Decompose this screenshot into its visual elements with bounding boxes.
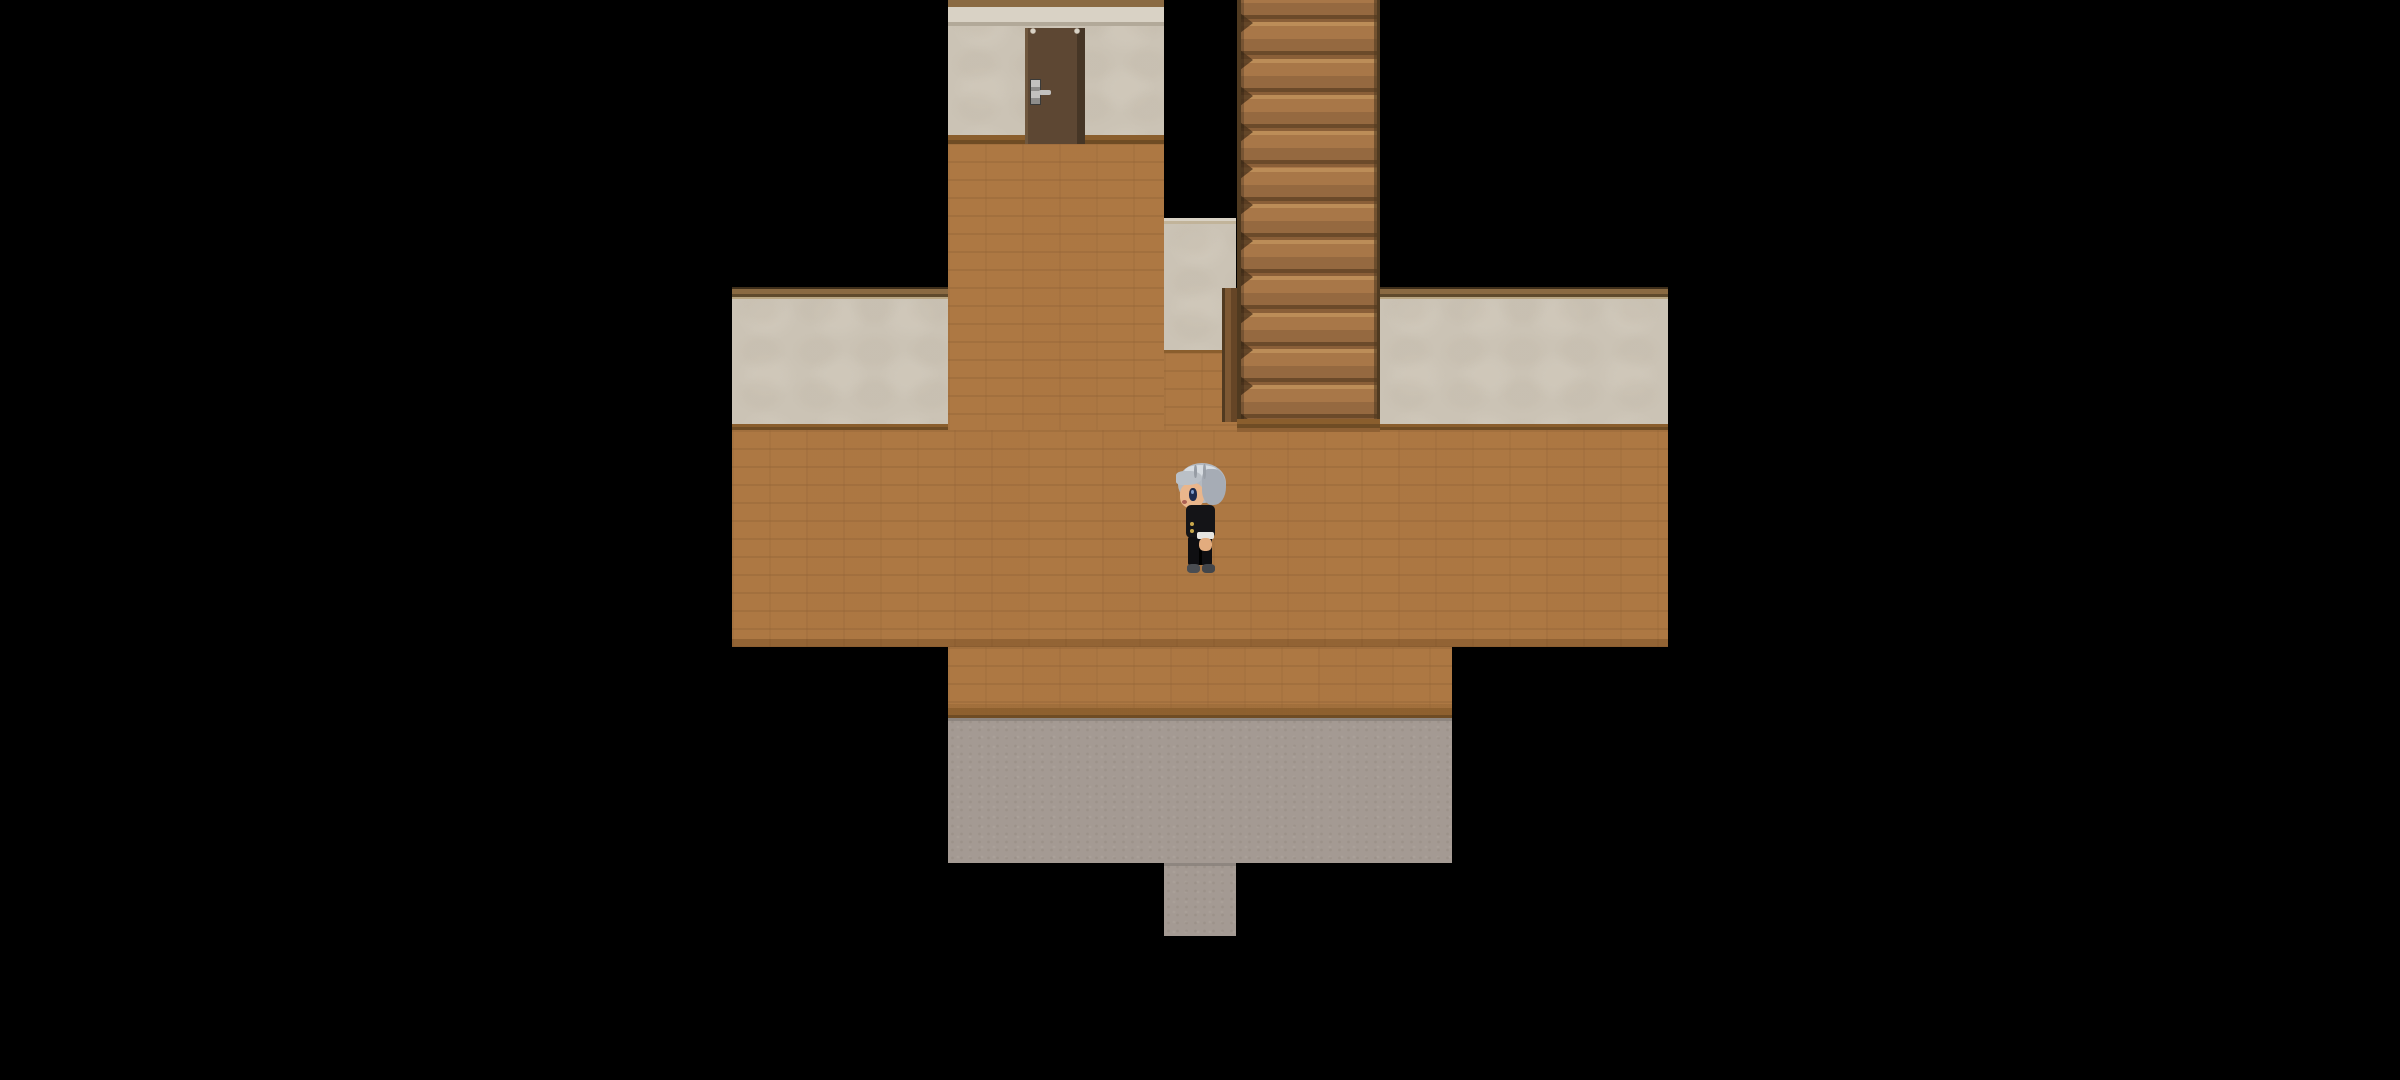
lower-floor[interactable] xyxy=(948,647,1452,720)
player-mouth xyxy=(1182,500,1187,504)
understairs-strip xyxy=(1237,419,1380,432)
player-shoe xyxy=(1202,564,1215,573)
player-button xyxy=(1190,522,1194,526)
player-hand xyxy=(1199,538,1212,551)
right-wall xyxy=(1380,287,1668,430)
stone-exit-corridor[interactable] xyxy=(1164,863,1236,936)
game-viewport[interactable] xyxy=(0,0,2400,1080)
door-handle-bar xyxy=(1039,90,1051,95)
hall-column-floor[interactable] xyxy=(948,143,1164,431)
player-button xyxy=(1190,529,1194,533)
player-eye-glint xyxy=(1191,490,1194,494)
player-shoe xyxy=(1187,564,1200,573)
stone-floor[interactable] xyxy=(948,718,1452,863)
player-hair-strand xyxy=(1194,465,1197,478)
player-character xyxy=(1176,463,1228,573)
stair-stringer xyxy=(1222,288,1237,422)
player-hair-strand xyxy=(1203,464,1206,479)
door[interactable] xyxy=(1025,28,1085,144)
staircase[interactable] xyxy=(1237,0,1380,421)
stair-edges xyxy=(1237,0,1380,421)
left-wall xyxy=(732,287,948,430)
